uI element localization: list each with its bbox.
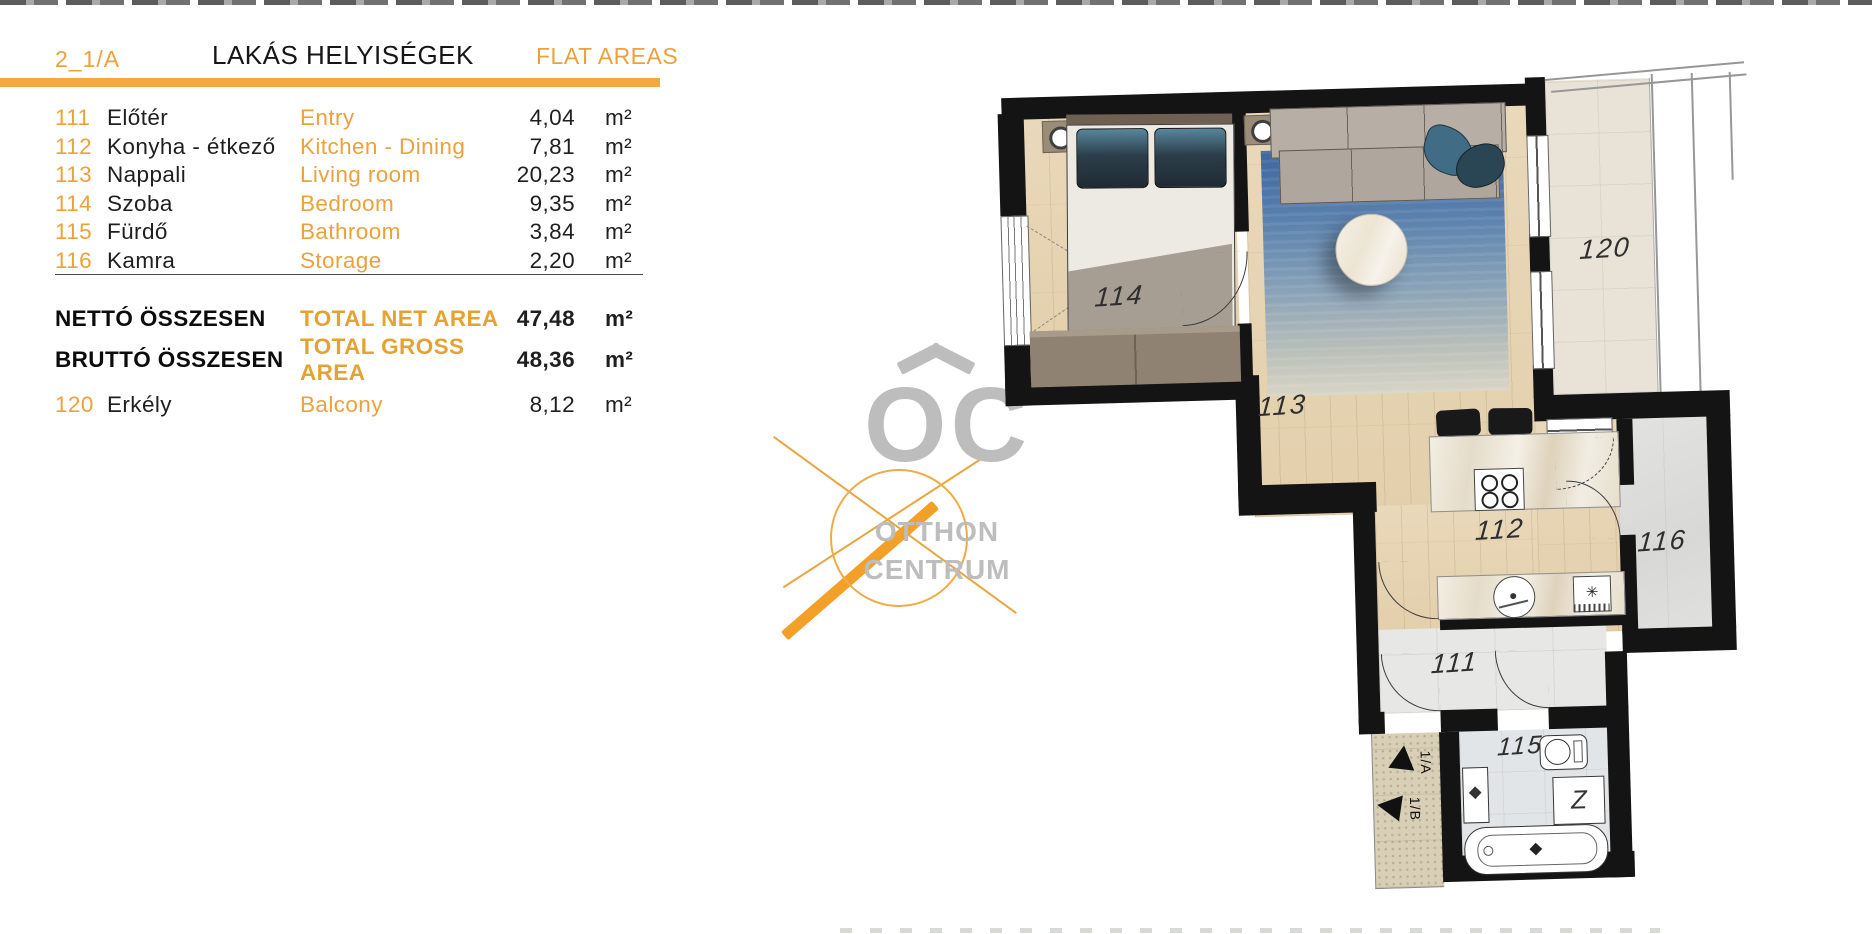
room-unit: m² (575, 191, 647, 217)
wall (1548, 705, 1609, 729)
room-unit: m² (575, 134, 647, 160)
room-area-table: 111 Előtér Entry 4,04 m² 112 Konyha - ét… (55, 104, 655, 275)
room-area: 7,81 (500, 134, 575, 160)
table-row: 114 Szoba Bedroom 9,35 m² (55, 190, 655, 219)
table-row: 115 Fürdő Bathroom 3,84 m² (55, 218, 655, 247)
wall (1706, 414, 1736, 629)
room-area: 2,20 (500, 248, 575, 274)
stove (1474, 468, 1525, 511)
wardrobe (1030, 326, 1241, 388)
room-unit: m² (575, 105, 647, 131)
total-net-unit: m² (575, 306, 647, 332)
totals-block: NETTÓ ÖSSZESEN TOTAL NET AREA 47,48 m² B… (55, 305, 655, 362)
room-code: 120 (55, 392, 107, 418)
room-code: 116 (55, 248, 107, 274)
room-name-en: Bedroom (300, 191, 500, 217)
sofa (1270, 102, 1507, 204)
room-label-112: 112 (1474, 513, 1525, 547)
wall (1533, 365, 1554, 398)
balcony-row: 120 Erkély Balcony 8,12 m² (55, 391, 655, 420)
room-area: 4,04 (500, 105, 575, 131)
room-unit: m² (575, 248, 647, 274)
wall (1525, 77, 1547, 138)
total-net-label-hu: NETTÓ ÖSSZESEN (55, 306, 300, 332)
wall (1439, 732, 1463, 873)
wall (1622, 626, 1737, 653)
toilet (1539, 734, 1588, 770)
room-label-120: 120 (1578, 232, 1631, 266)
balcony-railing (1691, 73, 1702, 409)
room-code: 111 (55, 105, 107, 131)
room-name-en: Storage (300, 248, 500, 274)
room-name-en: Kitchen - Dining (300, 134, 500, 160)
bedroom-window (1000, 215, 1032, 346)
balcony-window (1526, 135, 1551, 238)
floor-plan: ✳ Z 1/A 1/B 114 113 112 116 (991, 72, 1758, 907)
wall (1534, 390, 1731, 421)
total-net-row: NETTÓ ÖSSZESEN TOTAL NET AREA 47,48 m² (55, 305, 655, 334)
room-label-111: 111 (1430, 646, 1479, 680)
room-name-hu: Szoba (107, 191, 300, 217)
room-area: 9,35 (500, 191, 575, 217)
cropped-neighbor-plan-top (0, 0, 1872, 5)
room-name-hu: Nappali (107, 162, 300, 188)
logo-word-centrum: CENTRUM (862, 554, 1012, 586)
table-row: 113 Nappali Living room 20,23 m² (55, 161, 655, 190)
flat-datasheet-page: 2_1/A LAKÁS HELYISÉGEK FLAT AREAS 111 El… (0, 0, 1872, 934)
bar-chair (1488, 408, 1532, 435)
sheet-title-hu: LAKÁS HELYISÉGEK (212, 40, 474, 71)
accent-bar (0, 78, 660, 87)
room-area: 8,12 (500, 392, 575, 418)
room-name-hu: Előtér (107, 105, 300, 131)
room-name-en: Balcony (300, 392, 500, 418)
table-divider (55, 274, 643, 275)
wall (1605, 651, 1629, 710)
room-unit: m² (575, 162, 647, 188)
room-area: 20,23 (500, 162, 575, 188)
room-code: 113 (55, 162, 107, 188)
room-label-114: 114 (1094, 279, 1145, 313)
total-gross-value: 48,36 (500, 347, 575, 373)
room-code: 115 (55, 219, 107, 245)
room-unit: m² (575, 392, 647, 418)
pillow (1076, 128, 1148, 189)
balcony-railing (1729, 72, 1734, 180)
wall (998, 114, 1027, 217)
room-name-hu: Erkély (107, 392, 300, 418)
room-name-en: Living room (300, 162, 500, 188)
room-label-113: 113 (1257, 389, 1308, 423)
room-name-hu: Fürdő (107, 219, 300, 245)
wall (1529, 233, 1550, 274)
pillow (1154, 128, 1226, 189)
room-code: 112 (55, 134, 107, 160)
total-gross-label-en: TOTAL GROSS AREA (300, 334, 500, 386)
appliance-symbol: ✳ (1586, 584, 1599, 601)
wall (1606, 705, 1633, 878)
room-unit: m² (575, 219, 647, 245)
total-gross-label-hu: BRUTTÓ ÖSSZESEN (55, 347, 300, 373)
appliance-vent (1573, 603, 1609, 612)
logo-word-otthon: OTTHON (862, 516, 1012, 548)
room-code: 114 (55, 191, 107, 217)
washing-machine: Z (1552, 776, 1605, 825)
total-net-label-en: TOTAL NET AREA (300, 306, 500, 332)
table-row: 111 Előtér Entry 4,04 m² (55, 104, 655, 133)
entrance-arrow-label-1a: 1/A (1418, 750, 1435, 774)
room-name-hu: Kamra (107, 248, 300, 274)
room-label-116: 116 (1637, 524, 1688, 558)
washing-machine-symbol: Z (1571, 784, 1588, 814)
wall (1358, 712, 1385, 735)
bar-chair (1436, 408, 1482, 438)
wall (1440, 709, 1498, 733)
room-name-en: Entry (300, 105, 500, 131)
total-net-value: 47,48 (500, 306, 575, 332)
room-name-hu: Konyha - étkező (107, 134, 300, 160)
sheet-title-en: FLAT AREAS (536, 43, 678, 70)
room-name-en: Bathroom (300, 219, 500, 245)
cropped-neighbor-plan-bottom (840, 928, 1660, 933)
total-gross-row: BRUTTÓ ÖSSZESEN TOTAL GROSS AREA 48,36 m… (55, 334, 655, 363)
entrance-arrow-label-1b: 1/B (1407, 797, 1424, 821)
total-gross-unit: m² (575, 347, 647, 373)
bathtub (1464, 824, 1609, 876)
room-area: 3,84 (500, 219, 575, 245)
table-row: 116 Kamra Storage 2,20 m² (55, 247, 655, 276)
room-label-115: 115 (1496, 730, 1544, 762)
bathroom-sink (1462, 767, 1490, 824)
balcony-window (1530, 271, 1555, 370)
table-row: 112 Konyha - étkező Kitchen - Dining 7,8… (55, 133, 655, 162)
entrance-arrow-1a (1388, 744, 1417, 771)
unit-id: 2_1/A (55, 46, 120, 73)
entrance-arrow-1b (1375, 792, 1403, 821)
